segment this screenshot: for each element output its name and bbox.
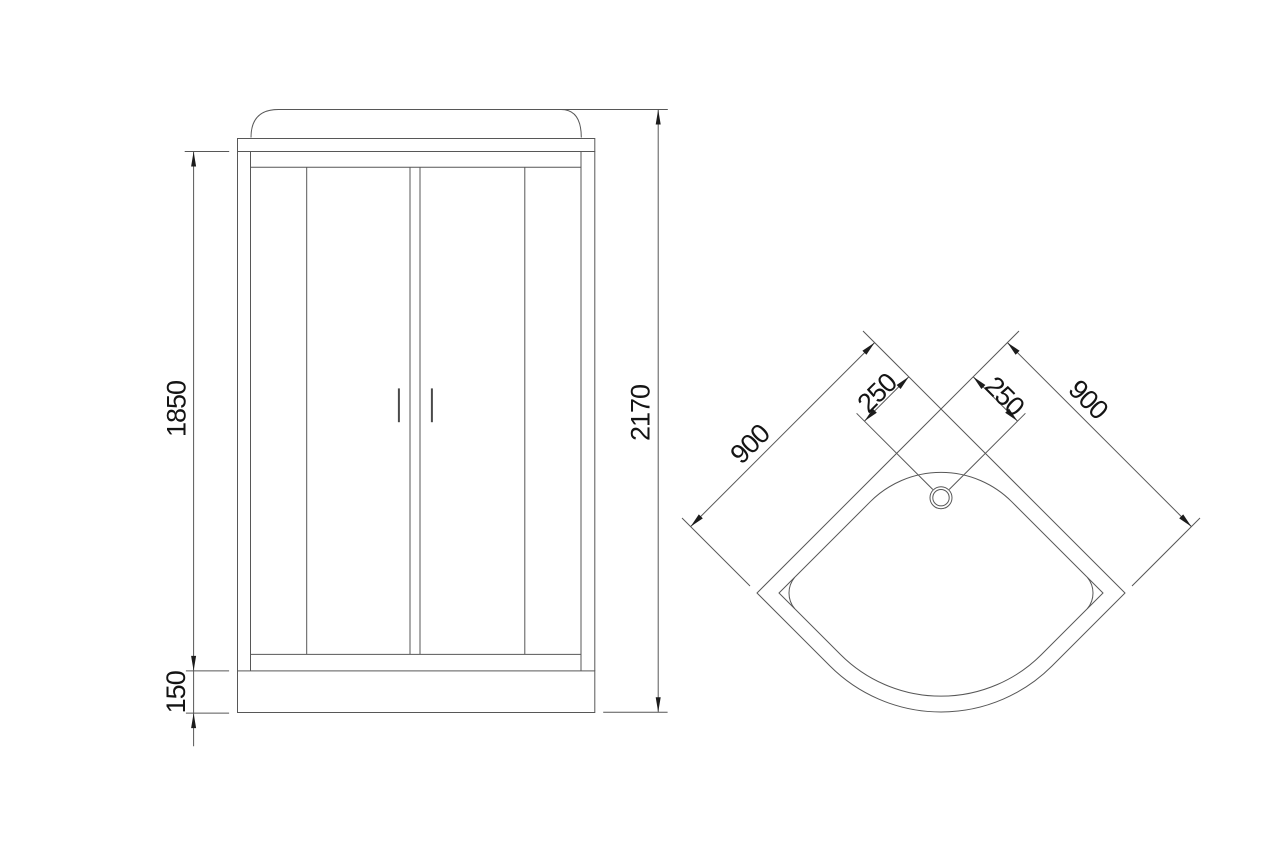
- svg-text:150: 150: [161, 671, 191, 713]
- svg-text:1850: 1850: [162, 381, 192, 437]
- svg-text:2170: 2170: [626, 385, 656, 441]
